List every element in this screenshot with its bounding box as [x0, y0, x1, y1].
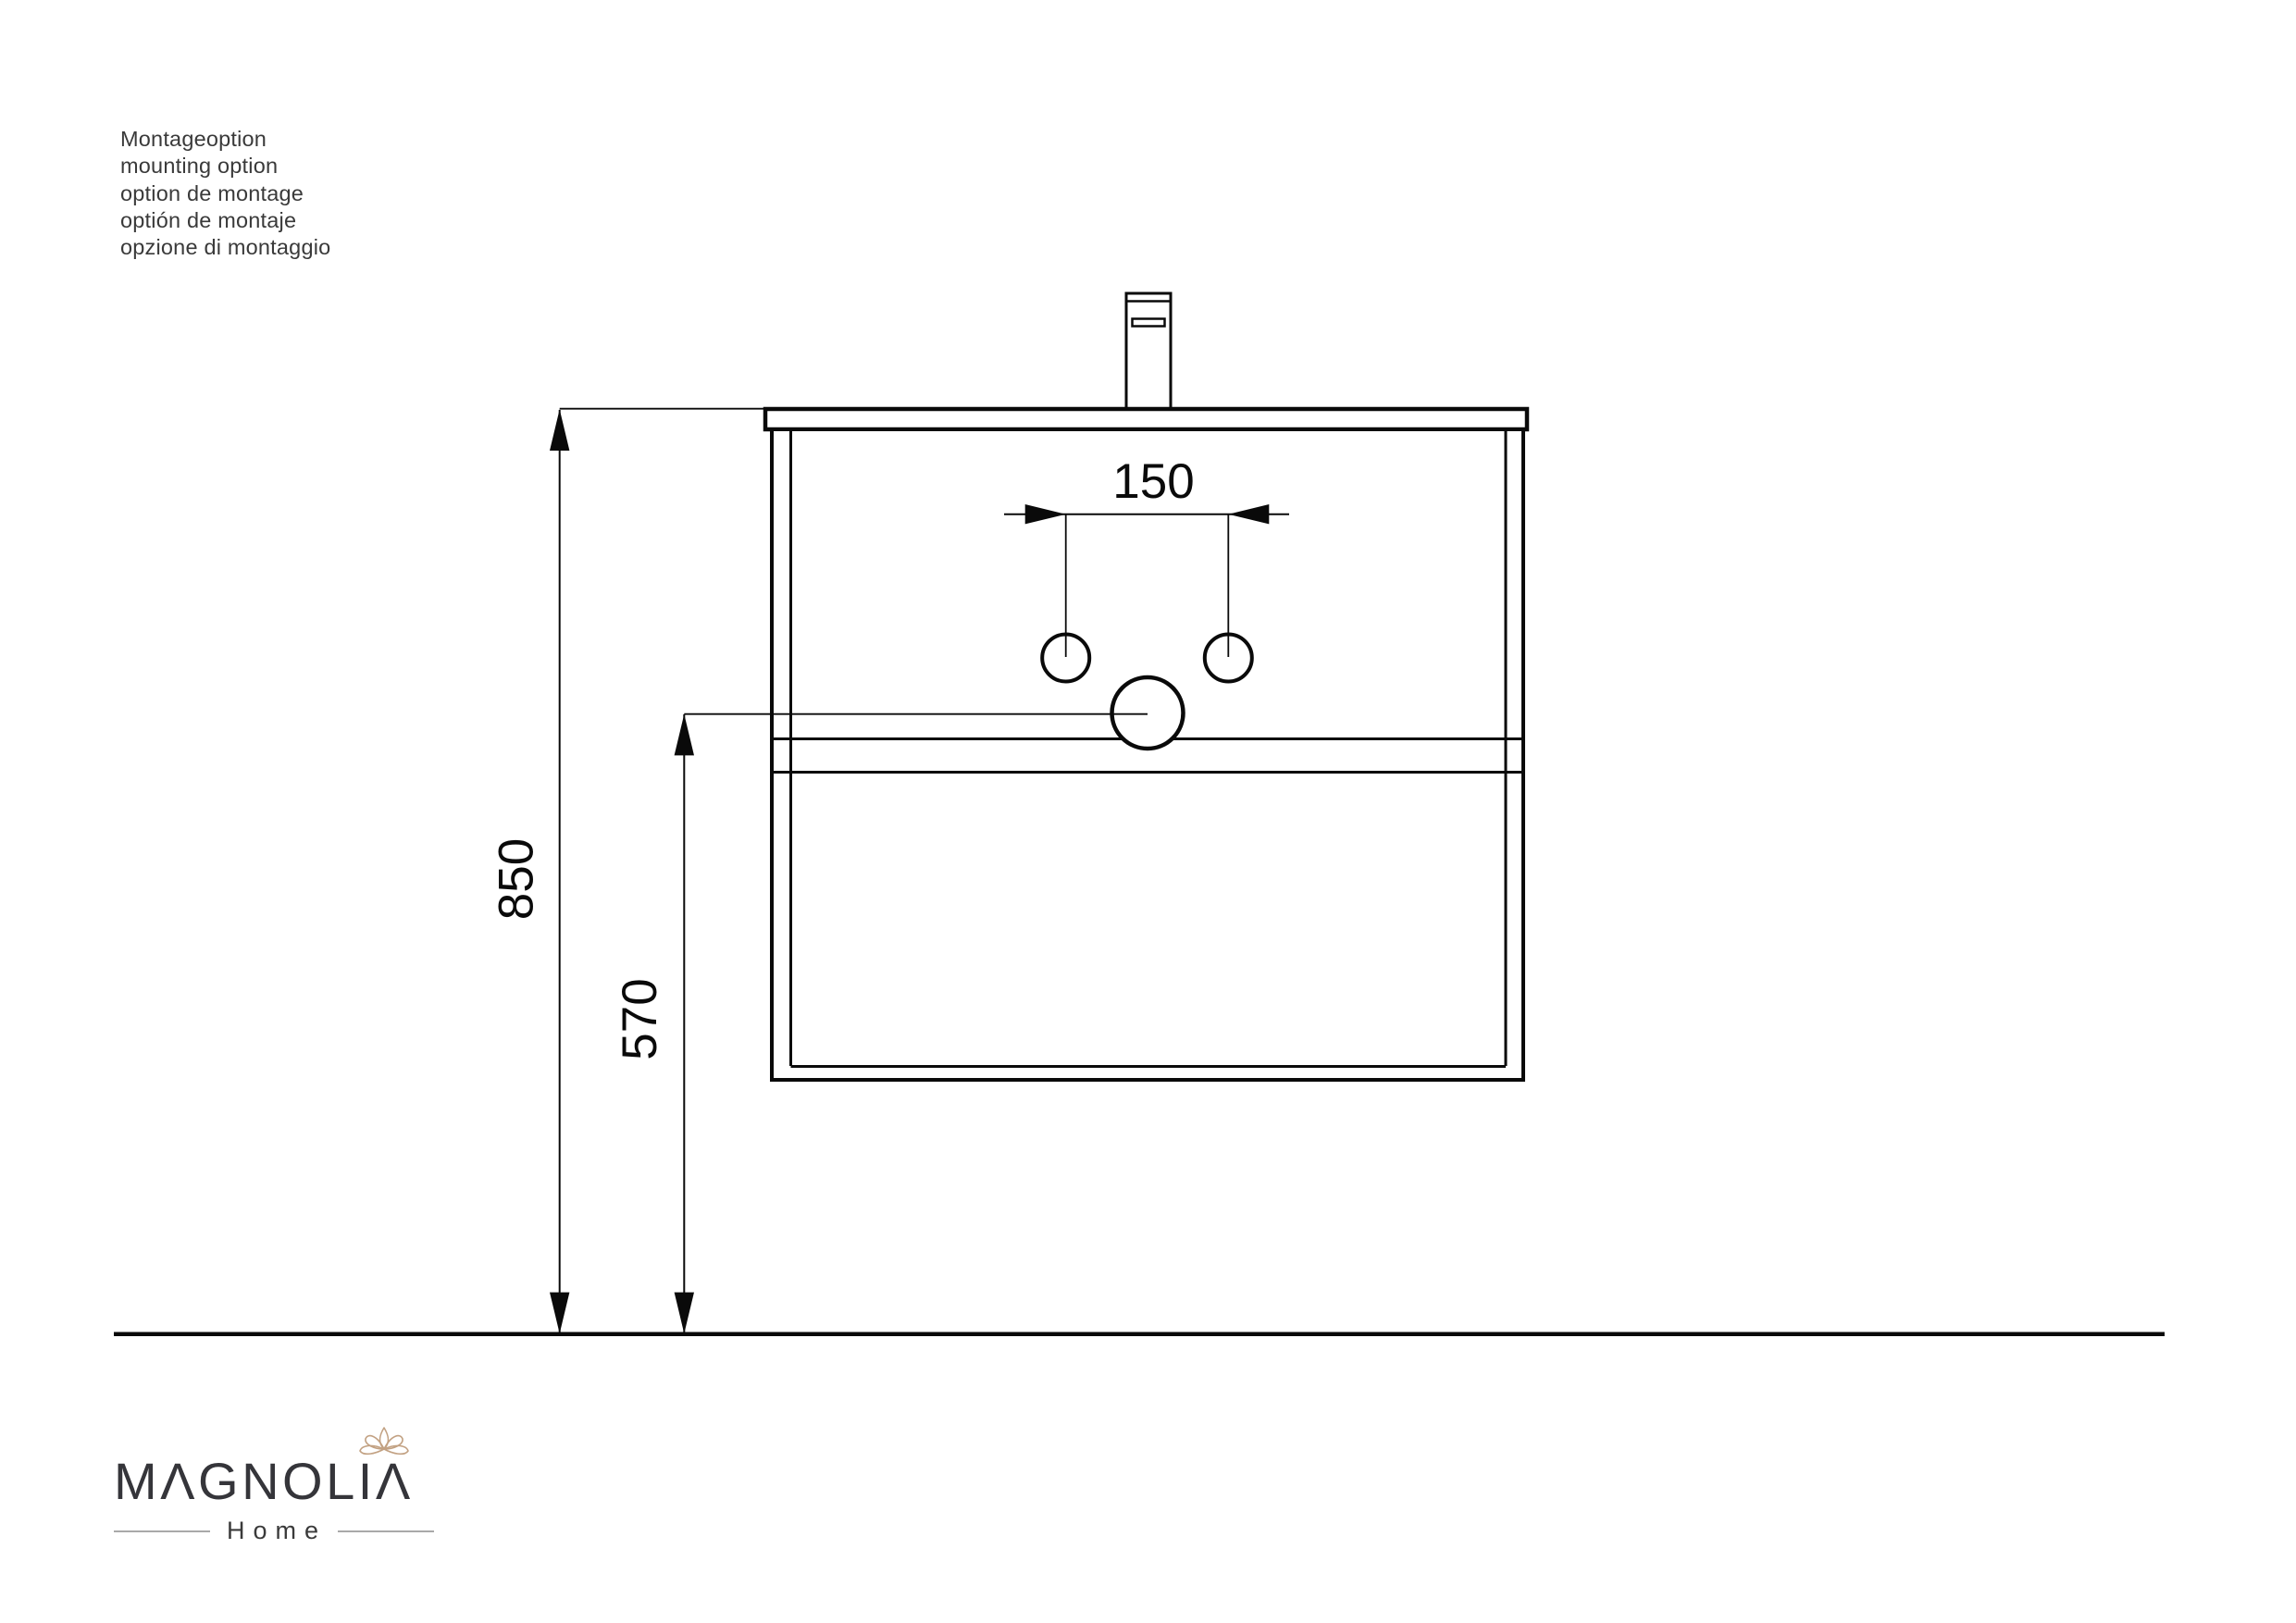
drain-hole — [1112, 677, 1184, 749]
faucet-detail — [1133, 319, 1165, 327]
dim-countertop-height-value: 850 — [490, 838, 544, 920]
faucet — [1126, 293, 1171, 410]
logo-divider-left — [114, 1530, 210, 1532]
mounting-option-sheet: Montageoption mounting option option de … — [0, 0, 2296, 1623]
logo-subtitle: Home — [210, 1517, 338, 1545]
countertop — [765, 409, 1527, 429]
dim-countertop-height: 850 — [490, 409, 768, 1334]
logo: MΛGNOLIΛ Home — [114, 1451, 447, 1545]
faucet-body — [1126, 293, 1171, 410]
dim-arrow-up-570 — [675, 714, 694, 756]
dim-hole-spacing-value: 150 — [1112, 454, 1194, 509]
dim-drain-height-value: 570 — [613, 978, 667, 1059]
dim-arrow-down-570 — [675, 1293, 694, 1334]
cabinet — [772, 429, 1523, 1080]
dim-arrow-up-850 — [550, 409, 569, 451]
dim-arrow-down-850 — [550, 1293, 569, 1334]
technical-drawing: 150 850 570 — [0, 0, 2296, 1623]
cabinet-outer-box — [772, 429, 1523, 1080]
logo-divider-right — [338, 1530, 434, 1532]
magnolia-flower-icon — [357, 1425, 411, 1466]
logo-divider-row: Home — [114, 1517, 434, 1545]
